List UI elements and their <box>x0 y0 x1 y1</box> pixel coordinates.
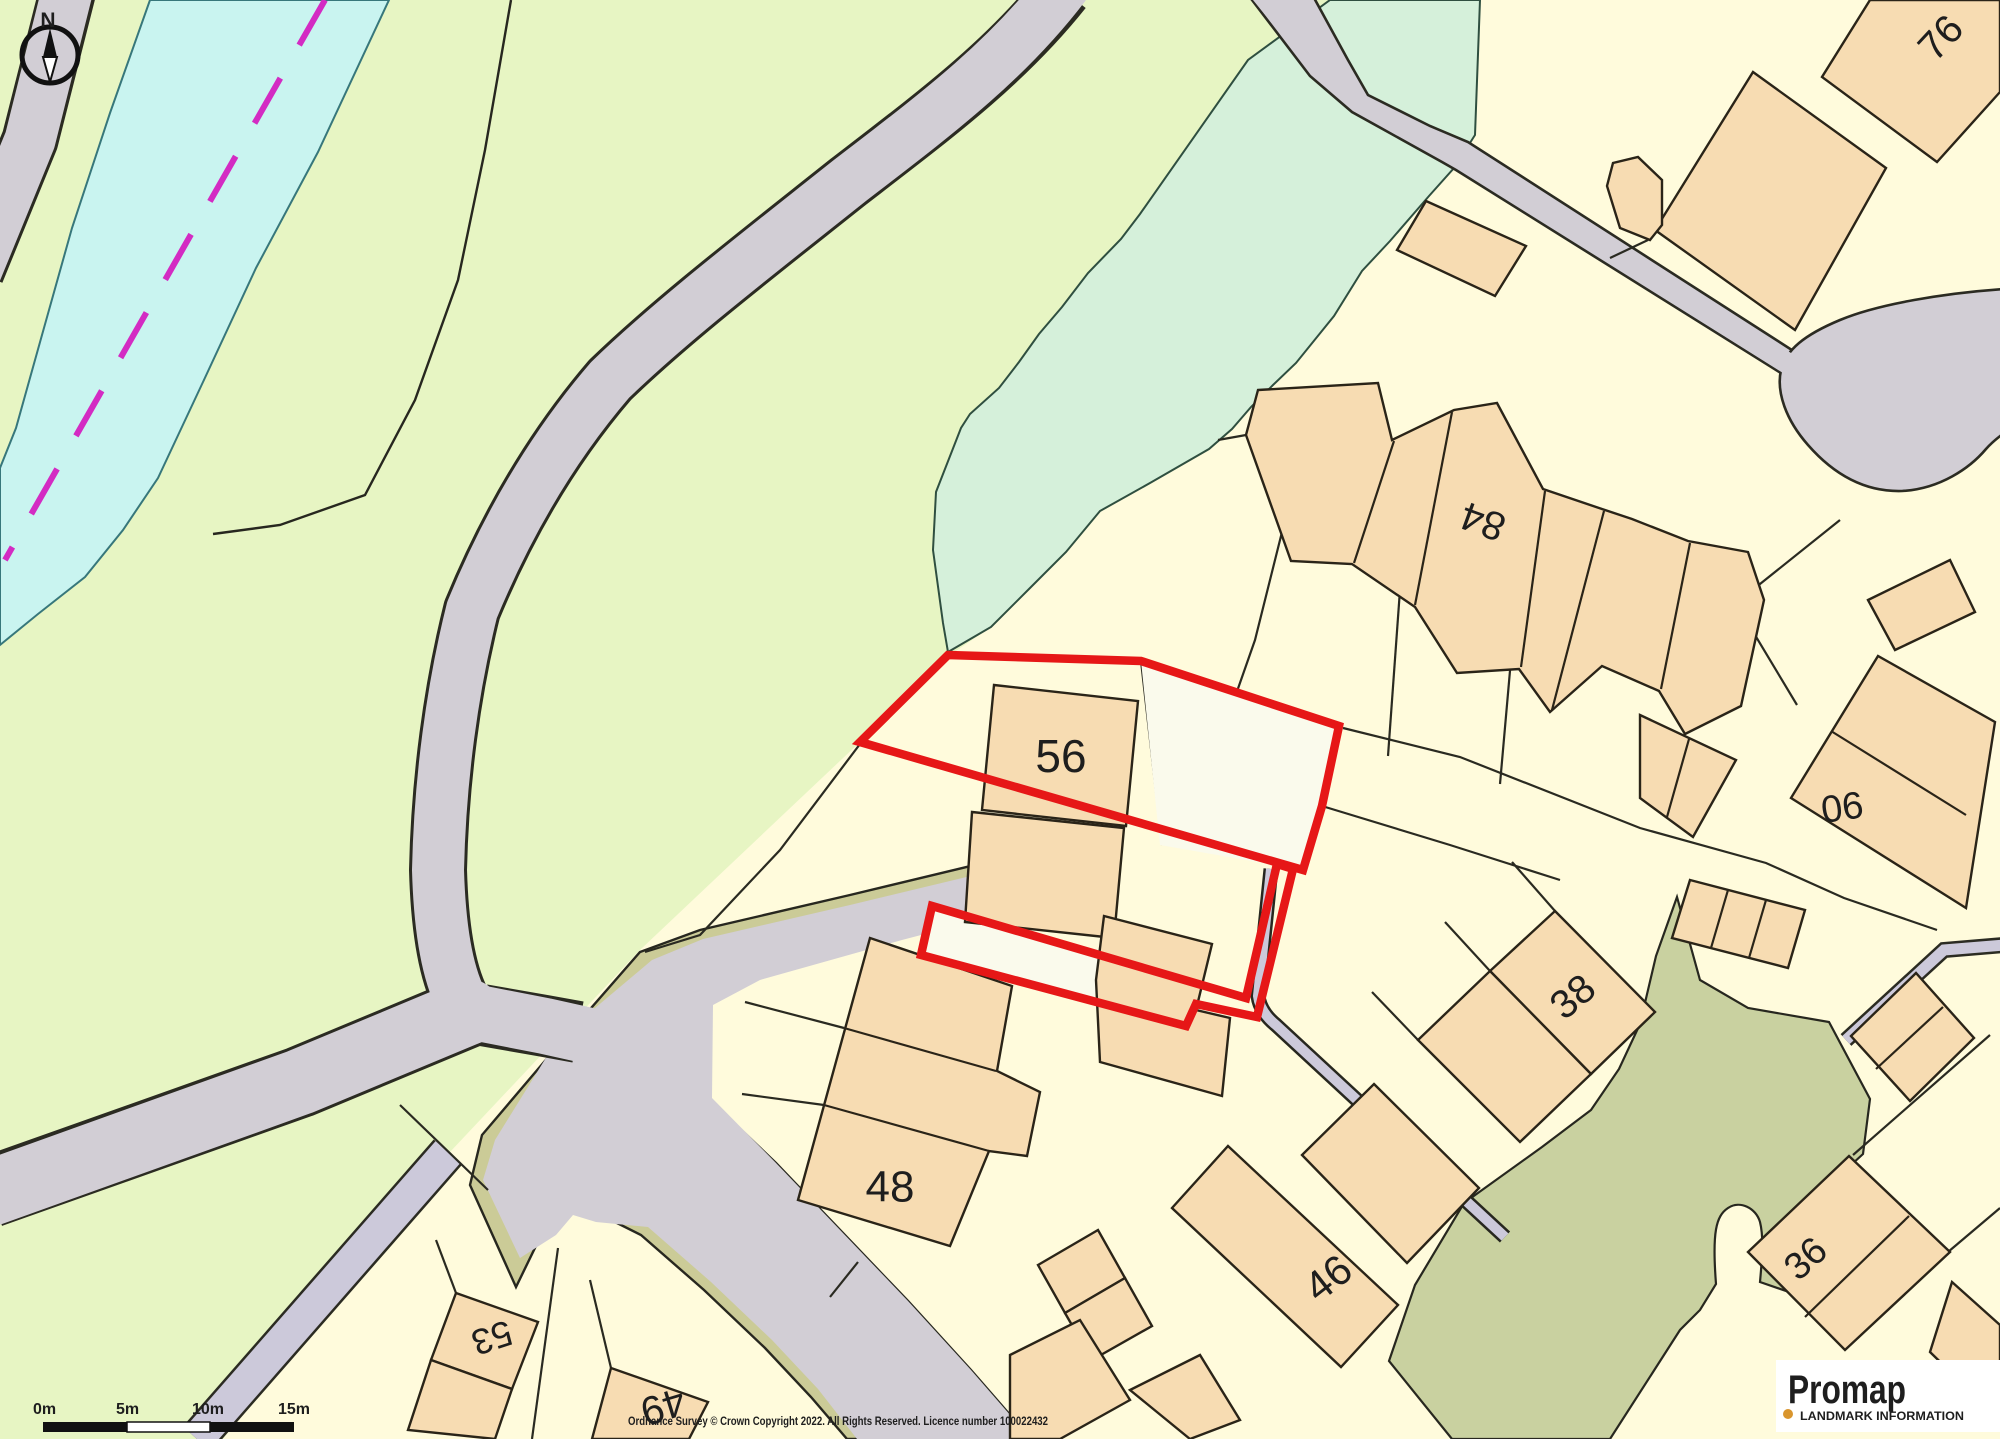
svg-text:N: N <box>40 9 55 32</box>
svg-text:90: 90 <box>1818 782 1866 829</box>
svg-text:56: 56 <box>1035 730 1086 782</box>
svg-text:10m: 10m <box>192 1401 224 1418</box>
svg-text:15m: 15m <box>278 1401 310 1418</box>
svg-text:LANDMARK INFORMATION: LANDMARK INFORMATION <box>1800 1409 1964 1423</box>
svg-text:Promap: Promap <box>1788 1368 1906 1412</box>
svg-text:0m: 0m <box>33 1401 56 1418</box>
svg-text:Ordnance Survey © Crown Copyri: Ordnance Survey © Crown Copyright 2022. … <box>628 1416 1048 1428</box>
svg-text:48: 48 <box>866 1163 915 1212</box>
svg-text:5m: 5m <box>116 1401 139 1418</box>
